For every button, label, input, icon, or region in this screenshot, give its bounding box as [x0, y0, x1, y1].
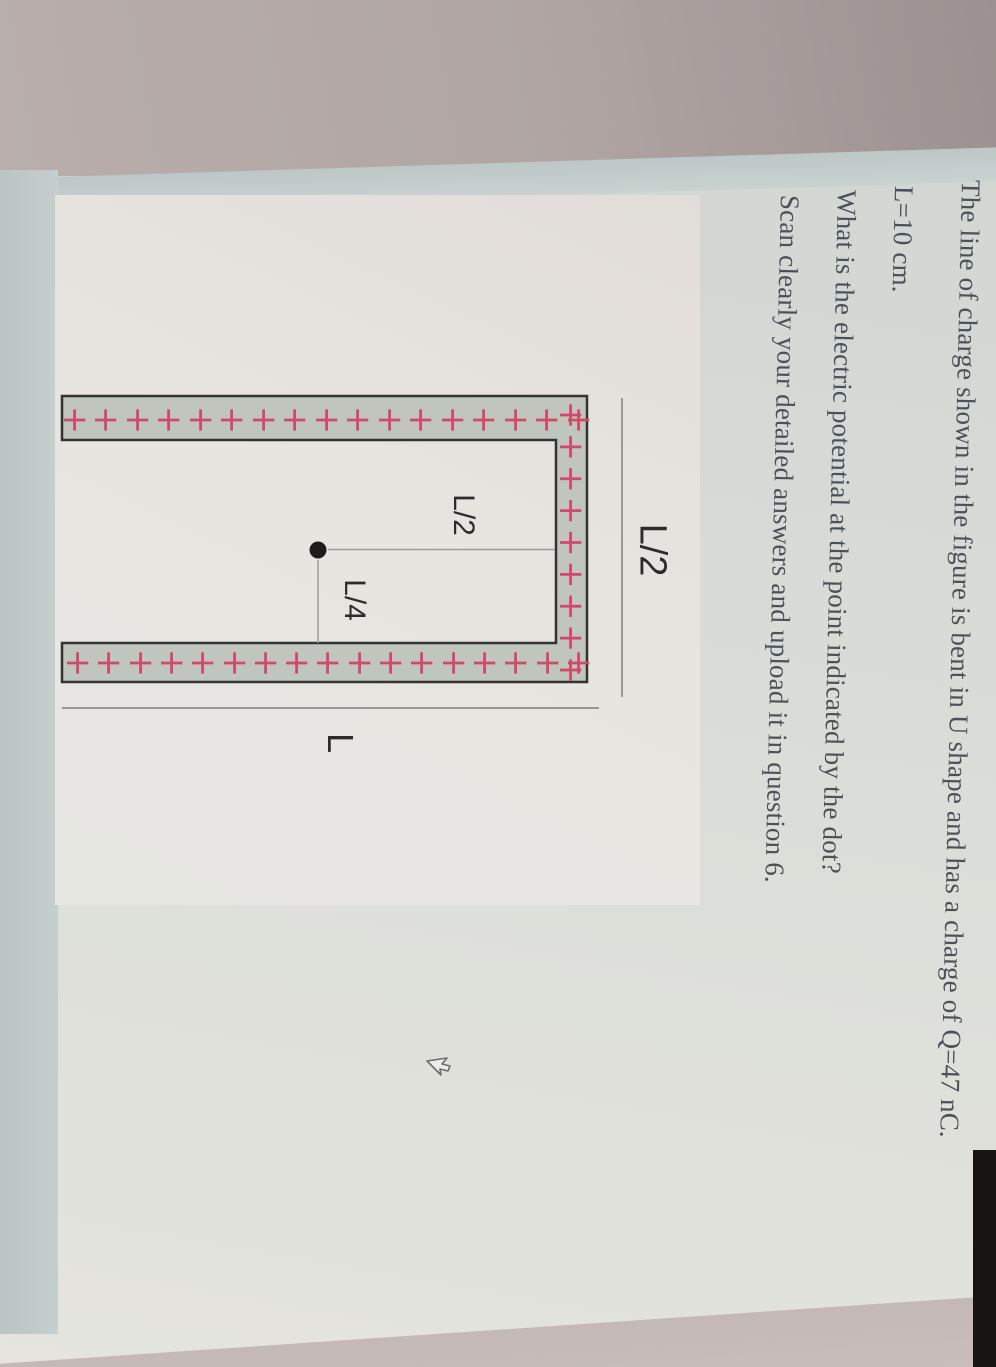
plus-charge-mark: +	[554, 465, 588, 494]
plus-charge-mark: +	[554, 433, 588, 462]
label-dot-to-side: L/4	[337, 579, 371, 621]
label-top-width: L/2	[631, 524, 674, 577]
plus-charge-mark: +	[58, 406, 92, 435]
photographed-screen: The line of charge shown in the figure i…	[0, 0, 996, 1367]
plus-charge-mark: +	[554, 528, 588, 557]
charge-plus-marks: ++++++++++++++++++++++++++++++++++++++++…	[0, 0, 996, 1367]
plus-charge-mark: +	[554, 496, 588, 525]
plus-charge-mark: +	[61, 649, 95, 678]
plus-charge-mark: +	[554, 560, 588, 589]
plus-charge-mark: +	[554, 592, 588, 621]
label-dot-to-top: L/2	[446, 494, 480, 536]
plus-charge-mark: +	[554, 401, 588, 430]
label-side-length: L	[319, 733, 361, 753]
rotated-quiz-page: The line of charge shown in the figure i…	[0, 0, 996, 1367]
